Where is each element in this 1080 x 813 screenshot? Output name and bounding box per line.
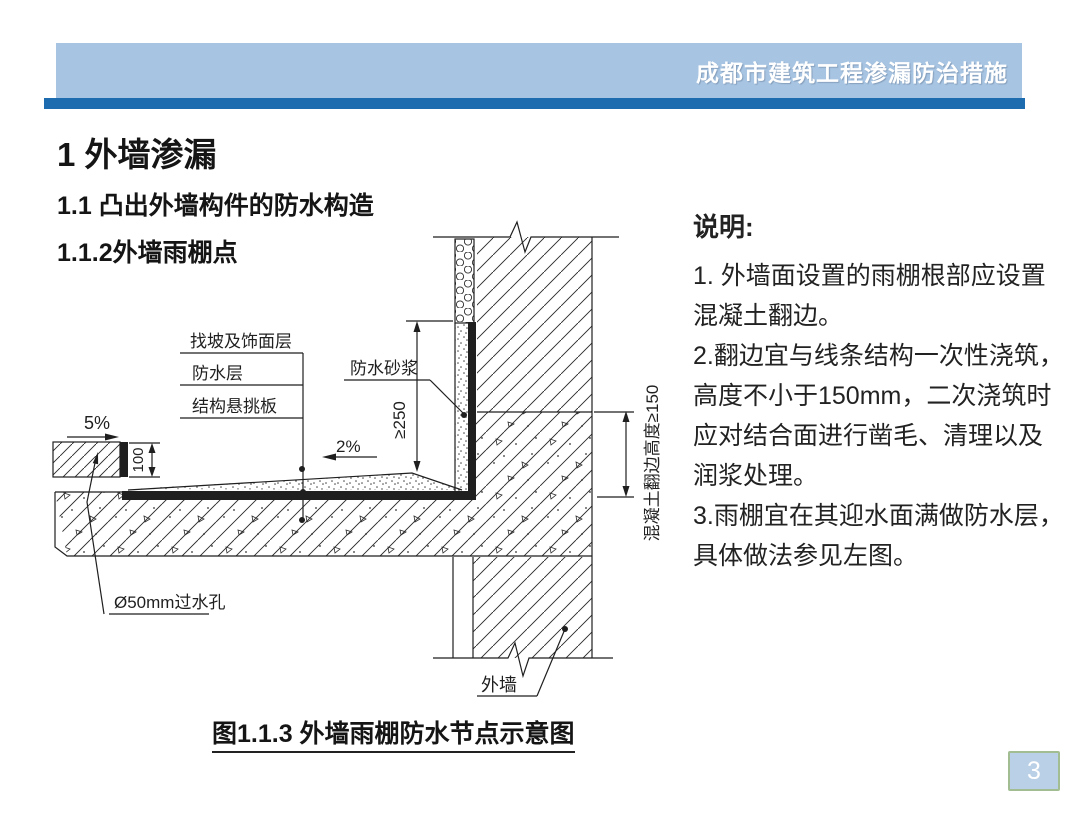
figure-caption-wrap: 图1.1.3 外墙雨棚防水节点示意图 xyxy=(212,714,575,750)
exterior-wall-label: 外墙 xyxy=(481,675,517,695)
dim250-arrow-top xyxy=(414,321,421,332)
wall-leader-dot xyxy=(562,626,568,632)
drain-hole-label: Ø50mm过水孔 xyxy=(114,593,225,612)
technical-drawing: 找坡及饰面层 防水层 结构悬挑板 防水砂浆 Ø50mm过水孔 外墙 5% 2% … xyxy=(0,0,1080,813)
slope5-label: 5% xyxy=(84,413,110,433)
waterproof-membrane-horizontal xyxy=(122,491,476,500)
slope2-arrowhead xyxy=(322,454,336,461)
dim250-label: ≥250 xyxy=(390,401,409,439)
drip-block-hatch xyxy=(53,442,120,477)
dim100-arrow-bottom xyxy=(149,467,156,477)
insulation-strip xyxy=(455,239,474,323)
page-number-badge: 3 xyxy=(1008,751,1060,791)
cantilever-slab-label: 结构悬挑板 xyxy=(192,397,277,416)
slope2-label: 2% xyxy=(336,437,361,456)
screed-finish-label: 找坡及饰面层 xyxy=(190,332,292,351)
upstand-dim-label: 混凝土翻边高度≥150 xyxy=(643,385,662,542)
waterproof-membrane-vertical xyxy=(468,322,476,500)
waterproof-layer-label: 防水层 xyxy=(192,364,243,383)
leader-dot xyxy=(299,517,305,523)
upper-wall-hatch xyxy=(477,237,592,412)
dim150-arrow-bottom xyxy=(623,486,630,497)
leader-dot xyxy=(300,489,306,495)
leader-dot xyxy=(299,466,305,472)
dim150-arrow-top xyxy=(623,411,630,422)
page-number: 3 xyxy=(1027,757,1041,786)
dim100-arrow-top xyxy=(149,443,156,453)
waterproof-mortar-label: 防水砂浆 xyxy=(350,359,418,378)
dim100-label: 100 xyxy=(130,447,147,472)
drip-edge-bar xyxy=(120,442,128,477)
figure-caption: 图1.1.3 外墙雨棚防水节点示意图 xyxy=(212,720,575,753)
slide: 成都市建筑工程渗漏防治措施 1 外墙渗漏 1.1 凸出外墙构件的防水构造 1.1… xyxy=(0,0,1080,813)
mortar-leader-dot xyxy=(461,412,467,418)
dim250-arrow-bottom xyxy=(414,461,421,472)
lower-wall-hatch xyxy=(473,557,592,658)
mortar-strip xyxy=(455,323,468,497)
slope5-arrowhead xyxy=(105,434,119,441)
